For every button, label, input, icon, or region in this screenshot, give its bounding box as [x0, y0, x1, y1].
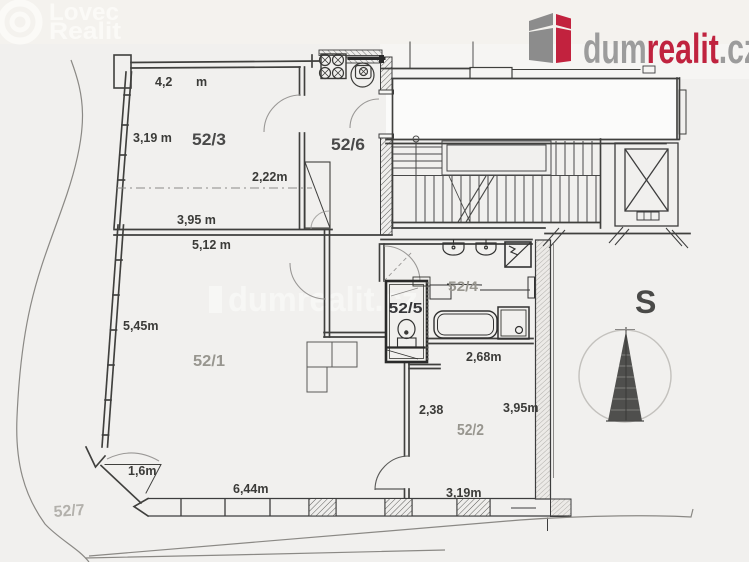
- svg-text:2,22m: 2,22m: [252, 170, 287, 184]
- svg-text:52/7: 52/7: [53, 502, 85, 521]
- svg-text:m: m: [196, 75, 207, 89]
- svg-text:3,95m: 3,95m: [503, 401, 538, 415]
- svg-text:1,6m: 1,6m: [128, 464, 157, 478]
- svg-text:3,19m: 3,19m: [446, 486, 481, 500]
- svg-text:52/1: 52/1: [193, 353, 225, 370]
- svg-text:3,95 m: 3,95 m: [177, 213, 216, 227]
- svg-text:3,19 m: 3,19 m: [133, 131, 172, 145]
- svg-text:2,68m: 2,68m: [466, 350, 501, 364]
- svg-text:52/2: 52/2: [457, 422, 484, 439]
- svg-text:52/4: 52/4: [448, 278, 478, 294]
- svg-text:52/3: 52/3: [192, 130, 226, 149]
- svg-text:52/6: 52/6: [331, 135, 365, 154]
- svg-text:S: S: [635, 284, 656, 320]
- svg-text:52/5: 52/5: [389, 300, 423, 317]
- svg-text:2,38: 2,38: [419, 403, 443, 417]
- svg-text:5,12 m: 5,12 m: [192, 238, 231, 252]
- svg-text:6,44m: 6,44m: [233, 482, 268, 496]
- svg-text:dumrealit.cz: dumrealit.cz: [583, 25, 749, 72]
- svg-text:Realit: Realit: [49, 18, 121, 45]
- svg-text:4,2: 4,2: [155, 75, 172, 89]
- svg-text:5,45m: 5,45m: [123, 319, 158, 333]
